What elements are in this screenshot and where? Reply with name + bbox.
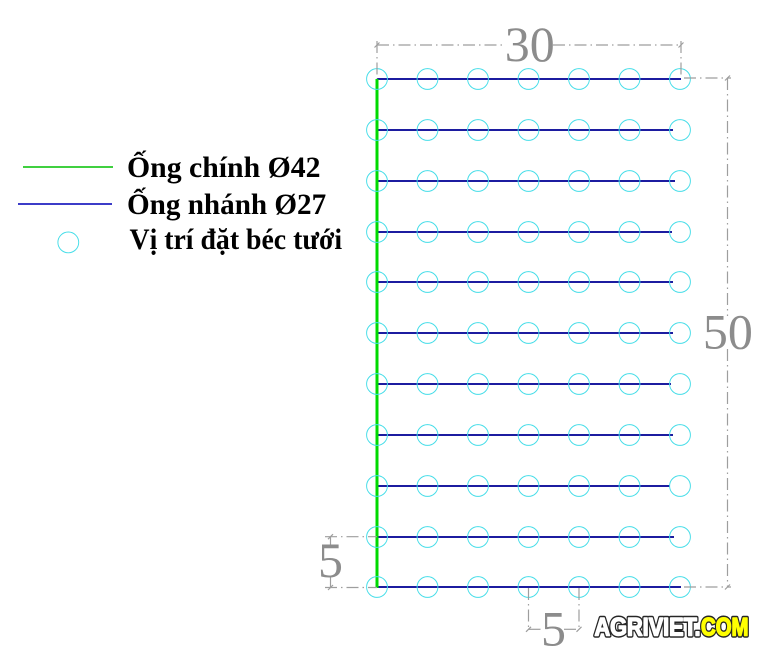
svg-text:50: 50 (703, 304, 753, 360)
svg-text:COM: COM (701, 614, 749, 642)
svg-text:5: 5 (541, 600, 566, 656)
svg-text:AGRIVIET.: AGRIVIET. (595, 614, 701, 642)
svg-text:5: 5 (318, 532, 343, 588)
svg-text:Ống nhánh Ø27: Ống nhánh Ø27 (127, 187, 326, 221)
svg-text:Vị trí đặt béc tưới: Vị trí đặt béc tưới (130, 224, 343, 256)
svg-text:30: 30 (505, 16, 555, 72)
svg-text:Ống chính Ø42: Ống chính Ø42 (127, 150, 321, 184)
